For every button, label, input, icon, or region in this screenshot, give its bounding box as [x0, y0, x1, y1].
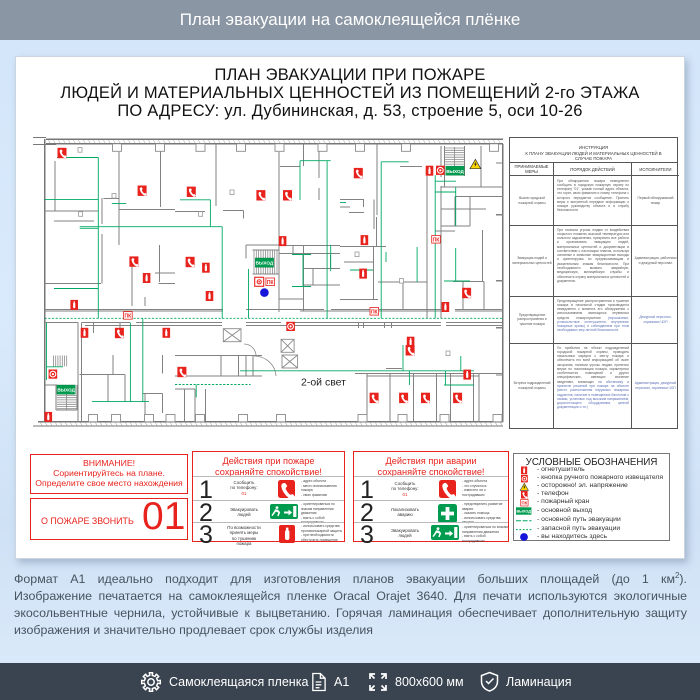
svg-text:2-ой свет: 2-ой свет — [301, 377, 346, 389]
svg-text:ПК: ПК — [125, 314, 133, 320]
svg-text:ПК: ПК — [522, 501, 528, 506]
svg-text:ВЫХОД: ВЫХОД — [516, 510, 531, 514]
svg-text:ПК: ПК — [267, 280, 275, 286]
svg-text:ВЫХОД: ВЫХОД — [446, 169, 464, 174]
svg-text:ПК: ПК — [371, 309, 379, 315]
svg-text:ВЫХОД: ВЫХОД — [256, 261, 274, 266]
svg-text:ВЫХОД: ВЫХОД — [57, 388, 75, 393]
svg-text:ПК: ПК — [433, 237, 441, 243]
